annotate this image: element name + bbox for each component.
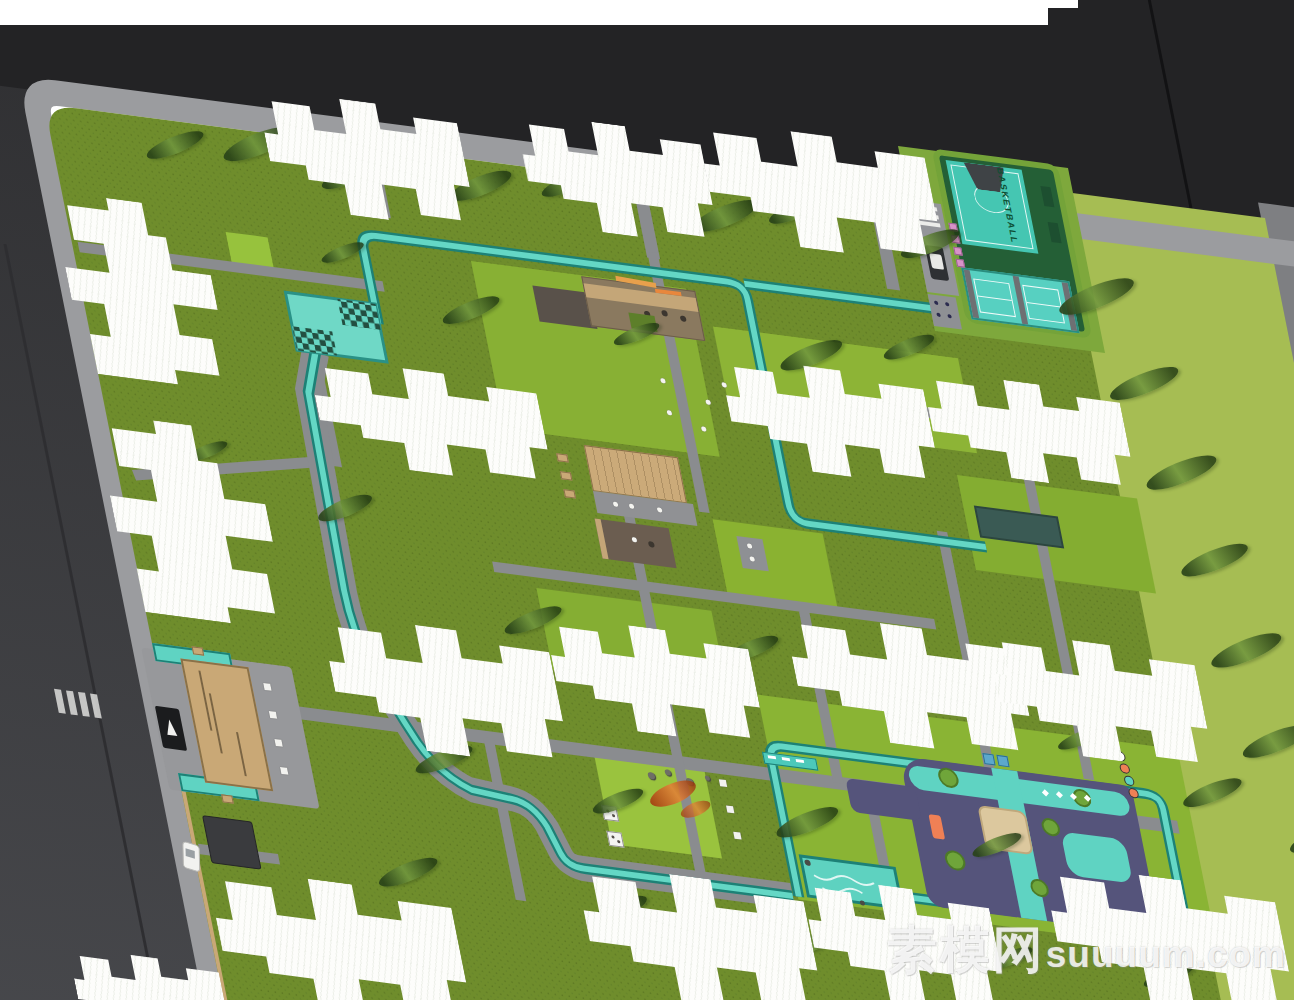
info-sign bbox=[996, 755, 1009, 767]
watermark-cn: 素模网 bbox=[887, 922, 1046, 978]
image-top-margin-notch bbox=[1048, 0, 1078, 8]
gate-post bbox=[192, 646, 205, 655]
plaza-table bbox=[661, 310, 668, 317]
site-plan-canvas: BASKETBALL bbox=[0, 0, 1294, 1000]
fence-post bbox=[560, 471, 573, 480]
fence-post bbox=[563, 489, 576, 498]
garden-rock bbox=[664, 769, 671, 776]
garden-rock bbox=[704, 775, 710, 781]
gym-equipment bbox=[934, 301, 939, 306]
badminton-court-lines bbox=[973, 278, 1016, 317]
info-sign bbox=[982, 753, 995, 765]
garden-rock bbox=[647, 772, 655, 780]
sign-text-dash bbox=[796, 759, 805, 763]
cafe-table bbox=[263, 683, 271, 691]
play-marker bbox=[953, 247, 963, 256]
sign-text-dash bbox=[768, 755, 777, 759]
gym-equipment bbox=[945, 302, 950, 307]
garden-table bbox=[733, 832, 741, 840]
garden-table bbox=[726, 805, 734, 813]
seat-dot bbox=[749, 556, 755, 562]
garden-seat bbox=[606, 831, 624, 848]
red-maple-tree bbox=[678, 797, 714, 821]
deck-joint bbox=[236, 732, 247, 776]
pavilion-table bbox=[631, 537, 637, 543]
watermark-en: suuuum.com bbox=[1046, 934, 1286, 975]
gym-equipment bbox=[947, 314, 952, 319]
fence-post bbox=[556, 453, 569, 462]
table-set bbox=[629, 503, 635, 509]
plaza-table bbox=[680, 315, 687, 322]
outdoor-gym bbox=[928, 294, 962, 330]
badminton-court-lines bbox=[1022, 285, 1065, 324]
table-set bbox=[613, 501, 619, 507]
masterplan-scene: BASKETBALL bbox=[0, 0, 1294, 1000]
pavilion-table bbox=[648, 541, 655, 548]
garden-pavilion bbox=[595, 519, 677, 569]
cafe-table bbox=[269, 711, 277, 719]
seat-dot bbox=[747, 543, 753, 549]
checker-pond bbox=[285, 292, 387, 362]
cafe-table bbox=[280, 767, 288, 775]
sign-text-dash bbox=[782, 757, 791, 761]
deck-tan-strip bbox=[584, 283, 699, 312]
cafe-table bbox=[274, 739, 282, 747]
gate-post bbox=[221, 794, 234, 803]
image-top-margin bbox=[0, 0, 1048, 25]
car-windshield bbox=[186, 848, 195, 858]
play-marker bbox=[956, 259, 966, 268]
white-sculpture bbox=[164, 719, 177, 736]
car-roof bbox=[929, 253, 944, 270]
garden-table bbox=[719, 779, 727, 787]
watermark: 素模网suuuum.com bbox=[887, 917, 1286, 984]
entrance-car bbox=[182, 841, 200, 873]
gym-equipment bbox=[936, 313, 941, 318]
table-set bbox=[657, 507, 663, 513]
